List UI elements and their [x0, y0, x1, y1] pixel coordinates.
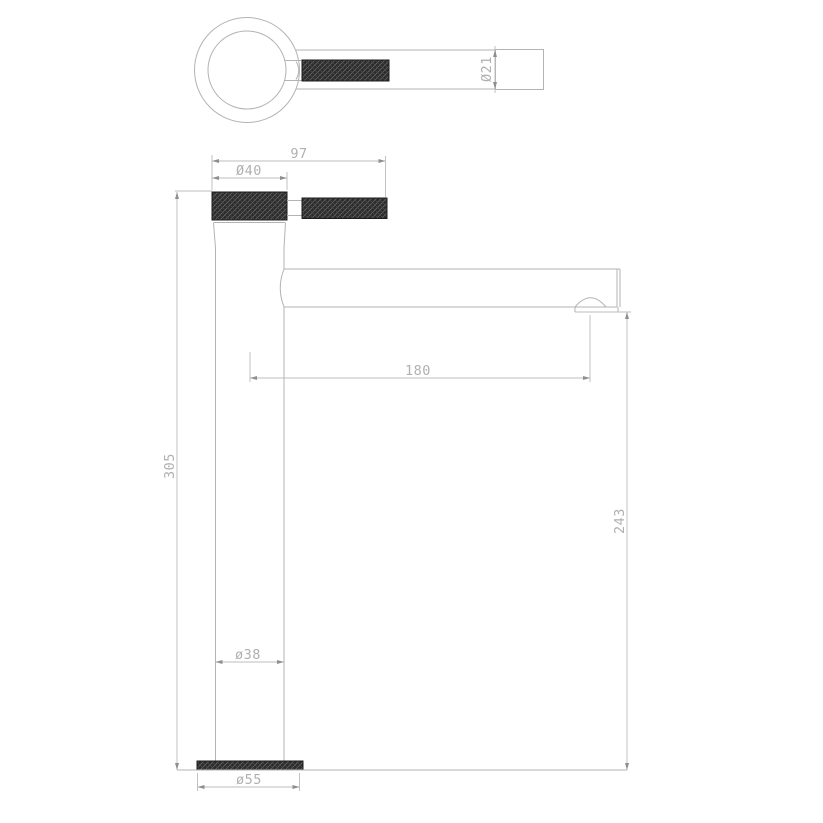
dim-label-spout-reach: 180 — [405, 363, 431, 379]
dim-arrow-up — [175, 192, 179, 199]
dim-arrow-down — [493, 82, 497, 89]
body-right-edge — [280, 223, 285, 761]
dim-label-spout-height: 243 — [612, 508, 628, 534]
handle-end-cap — [496, 50, 544, 90]
base-knurl-plate — [197, 761, 303, 770]
handle-ring-inner-circle — [208, 31, 286, 109]
dim-arrow-up — [625, 312, 629, 319]
technical-drawing-page: Ø21 97 — [0, 0, 823, 823]
dim-arrow-right — [277, 660, 284, 664]
handle-ring-outer-circle — [195, 18, 300, 123]
body-left-edge — [214, 223, 216, 761]
dim-label-cap-diameter: Ø40 — [236, 163, 262, 179]
dim-arrow-up — [493, 50, 497, 57]
dim-arrow-down — [625, 763, 629, 770]
faucet-dimension-drawing: Ø21 97 — [0, 0, 823, 823]
dim-label-total-height: 305 — [162, 453, 178, 479]
dim-label-body-diameter: ø38 — [235, 647, 261, 663]
aerator-dome — [575, 298, 606, 307]
cap-knurl-front-view — [212, 192, 287, 220]
dim-label-handle-end-diameter: Ø21 — [479, 56, 495, 82]
dim-arrow-right — [583, 376, 590, 380]
dim-arrow-left — [212, 159, 219, 163]
handle-knurl-top-view — [302, 60, 389, 81]
dim-arrow-right — [293, 785, 300, 789]
front-view — [177, 192, 627, 770]
dim-arrow-down — [175, 763, 179, 770]
top-view: Ø21 — [195, 18, 544, 123]
dim-arrow-right — [280, 176, 287, 180]
dim-arrow-left — [250, 376, 257, 380]
dim-arrow-left — [216, 660, 223, 664]
dim-arrow-right — [379, 159, 386, 163]
dimension-annotations: 97 Ø40 305 180 243 ø38 — [162, 146, 631, 791]
dim-arrow-left — [198, 785, 205, 789]
dim-label-base-diameter: ø55 — [236, 772, 262, 788]
dim-arrow-left — [212, 176, 219, 180]
handle-stem-arc — [296, 62, 299, 80]
lever-knurl-front-view — [302, 198, 387, 219]
dim-label-handle-length: 97 — [290, 146, 307, 162]
